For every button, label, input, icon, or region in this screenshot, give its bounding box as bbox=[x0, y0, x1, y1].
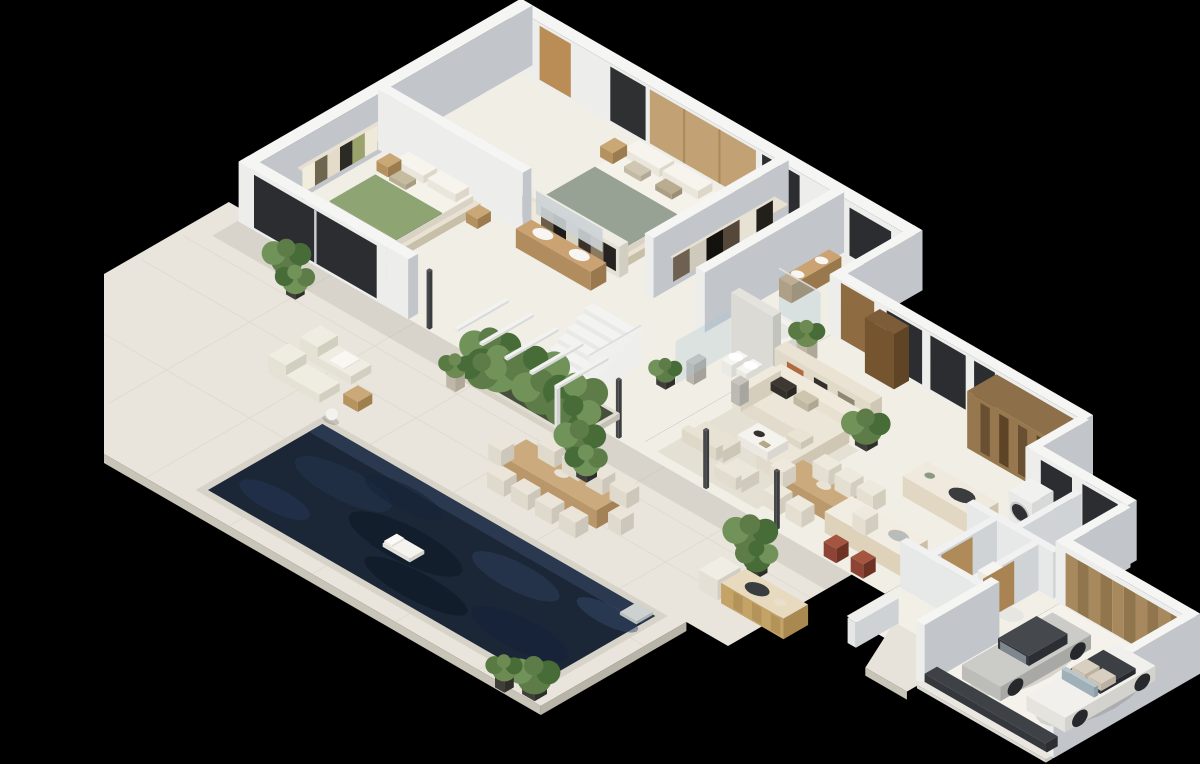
entry-cactus-foliage bbox=[800, 320, 814, 334]
hall-plant-foliage bbox=[659, 358, 672, 371]
facade-column-sw bbox=[703, 430, 706, 490]
closet-bath-wall-sw bbox=[696, 267, 705, 332]
garage-slat-wall-stripe bbox=[1124, 586, 1136, 646]
apron-side-wall-sw bbox=[848, 618, 856, 648]
terrace-planter-foliage bbox=[748, 541, 764, 557]
wine-cabinet-shelves-stripe bbox=[1009, 419, 1018, 473]
terrace-planter-foliage bbox=[740, 514, 761, 535]
wine-cabinet-shelves-stripe bbox=[981, 403, 990, 457]
terrace-planter-foliage bbox=[287, 265, 302, 280]
decor-ball bbox=[326, 408, 338, 420]
front-wall-stub bbox=[386, 241, 418, 319]
terrace-cactus-foliage bbox=[449, 353, 462, 366]
terrace-planter-foliage bbox=[578, 445, 594, 461]
facade-column-se bbox=[619, 379, 622, 439]
garage-slat-wall-stripe bbox=[1089, 566, 1101, 626]
facade-column-se bbox=[430, 270, 433, 330]
headboard-panel-line bbox=[718, 129, 720, 184]
facade-column bbox=[616, 377, 622, 438]
pool-corner-plant-foliage bbox=[524, 656, 543, 675]
garage-slat-wall-stripe bbox=[1101, 573, 1113, 633]
garage-slat-wall-stripe bbox=[1066, 553, 1078, 613]
terrace-planter-foliage bbox=[277, 239, 295, 257]
garage-slat-wall-stripe bbox=[1077, 560, 1089, 620]
living-plant-foliage bbox=[856, 409, 874, 427]
open-closet-wall-se bbox=[619, 242, 628, 278]
slider-mullion bbox=[314, 210, 317, 264]
pool-corner-cactus-foliage bbox=[497, 654, 511, 668]
facade-column bbox=[427, 268, 433, 329]
facade-column bbox=[703, 428, 709, 489]
headboard-panel-line bbox=[683, 109, 685, 164]
courtyard-shrub-foliage bbox=[473, 353, 491, 371]
facade-column-sw bbox=[616, 379, 619, 439]
wine-cabinet-shelves-stripe bbox=[971, 398, 980, 452]
facade-column bbox=[774, 469, 780, 530]
garage-left-wall-sw bbox=[916, 620, 924, 685]
wine-cabinet-shelves-stripe bbox=[990, 408, 999, 462]
closet-corridor-wall-sw bbox=[645, 233, 654, 298]
entry-wardrobe-dark-se bbox=[894, 326, 909, 390]
front-wall-stub-se bbox=[408, 254, 418, 320]
facade-column-se bbox=[777, 470, 780, 530]
wine-cabinet-shelves-stripe bbox=[999, 414, 1008, 468]
villa-floorplan-stage bbox=[0, 0, 1200, 764]
courtyard-shrub-foliage bbox=[563, 395, 584, 416]
facade-column-sw bbox=[774, 470, 777, 530]
facade-column-sw bbox=[427, 270, 430, 330]
garage-slat-wall-stripe bbox=[1112, 580, 1124, 640]
gray-pedestal bbox=[731, 375, 749, 406]
villa-floorplan-3d bbox=[0, 0, 1200, 764]
facade-column-se bbox=[706, 430, 709, 490]
terrace-planter-foliage bbox=[570, 420, 589, 439]
front-wall-stub-sw bbox=[386, 247, 408, 320]
